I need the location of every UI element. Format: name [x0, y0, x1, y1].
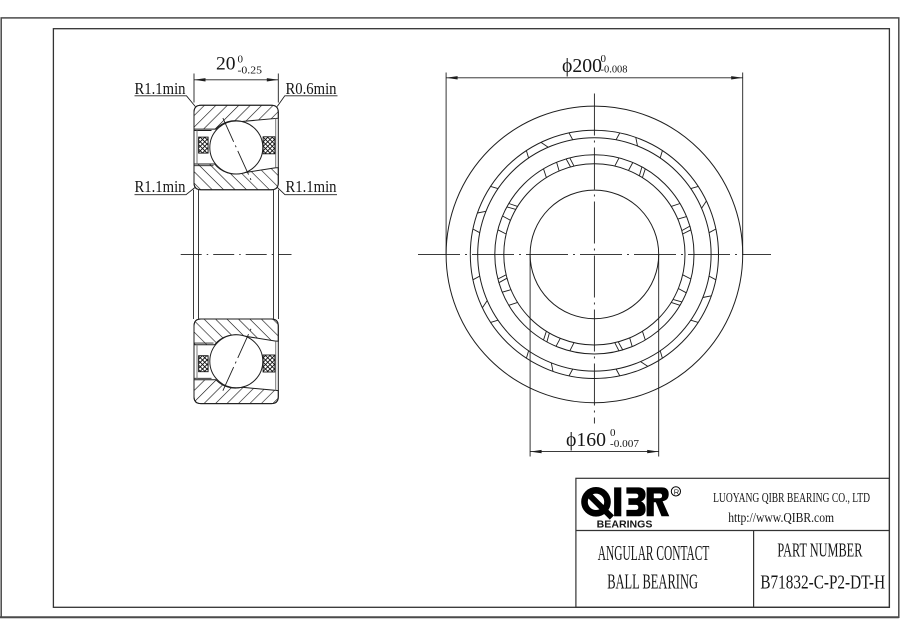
svg-text:http://www.QIBR.com: http://www.QIBR.com [728, 510, 834, 525]
svg-text:ϕ160: ϕ160 [566, 430, 606, 451]
svg-text:20: 20 [216, 53, 236, 74]
svg-text:LUOYANG QIBR BEARING CO., LTD: LUOYANG QIBR BEARING CO., LTD [713, 490, 870, 505]
svg-text:R: R [674, 487, 680, 496]
svg-text:BEARINGS: BEARINGS [597, 518, 653, 530]
svg-text:-0.25: -0.25 [238, 65, 263, 77]
svg-text:0: 0 [238, 53, 244, 65]
svg-text:ANGULAR CONTACT: ANGULAR CONTACT [598, 541, 710, 565]
svg-text:BALL BEARING: BALL BEARING [607, 570, 698, 594]
svg-text:-0.008: -0.008 [601, 64, 628, 76]
svg-text:R1.1min: R1.1min [135, 177, 186, 196]
svg-text:ϕ200: ϕ200 [562, 56, 602, 77]
svg-text:B71832-C-P2-DT-H: B71832-C-P2-DT-H [760, 572, 885, 594]
svg-text:-0.007: -0.007 [610, 438, 640, 450]
svg-text:R1.1min: R1.1min [135, 79, 186, 98]
svg-text:R0.6min: R0.6min [286, 79, 337, 98]
svg-text:PART NUMBER: PART NUMBER [777, 539, 862, 561]
svg-text:R1.1min: R1.1min [286, 177, 337, 196]
